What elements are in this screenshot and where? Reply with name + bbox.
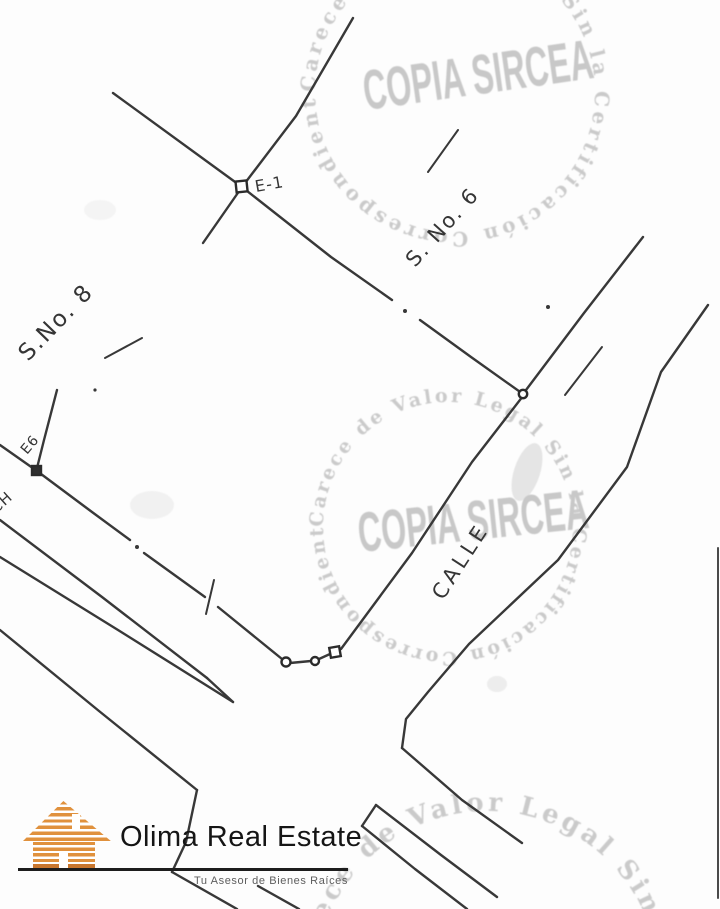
monument-connector [290,661,311,663]
boundary-e6-to-corner [218,607,282,659]
label-station-e6: E6 [18,432,43,457]
house-door [59,852,68,869]
dash-dot [546,305,550,309]
watermark-center-text: COPIA SIRCEA [359,28,597,122]
tick-mark [428,130,458,172]
boundary-e6-to-corner [37,471,130,540]
street-lower-edge [0,630,197,790]
house-chimney [72,814,80,829]
dash-dot [135,545,139,549]
dash-dot [93,388,96,391]
house-roof [22,801,112,842]
smudge [130,491,174,519]
label-station-e1: E-1 [253,172,285,196]
survey-ink-layer [0,18,718,909]
street-band2-edge [362,826,467,909]
logo-rule [18,868,348,871]
boundary-e1-to-corner [420,320,523,394]
boundary-e6-to-corner [144,553,205,597]
realtor-logo: Olima Real Estate Tu Asesor de Bienes Ra… [16,795,350,895]
street-band-bottom-edge [0,557,233,702]
monument-circle [311,657,319,665]
dash-mark [105,338,142,358]
street-band2-cap [362,805,376,826]
dash-dot [403,309,407,313]
monument-e1 [236,180,248,192]
watermark-layer: Carece de Valor Legal Sin la Certificaci… [0,0,682,909]
boundary-e1-to-e6 [203,187,242,243]
monument-square [329,646,341,658]
boundary-line-nw-arm [113,93,242,187]
boundary-e1-to-e6 [37,390,57,468]
survey-drawing-canvas: Carece de Valor Legal Sin la Certificaci… [0,0,720,909]
scanned-survey-sketch: Carece de Valor Legal Sin la Certificaci… [0,0,720,909]
house-icon [22,801,112,869]
monument-circle [282,658,291,667]
logo-tagline: Tu Asesor de Bienes Raíces [194,875,348,887]
scan-smudges [84,200,549,692]
monument-e6 [32,466,41,475]
smudge [487,676,507,692]
house-body [33,842,95,869]
monument-connector [319,654,330,659]
monument-corner-j [519,390,527,398]
label-edge-scribble: CH [0,488,16,517]
label-lot-sno8: S.No. 8 [14,279,99,366]
logo-title: Olima Real Estate [120,821,362,854]
tick-mark [206,580,214,614]
street-center-dash [565,347,602,395]
smudge [84,200,116,220]
